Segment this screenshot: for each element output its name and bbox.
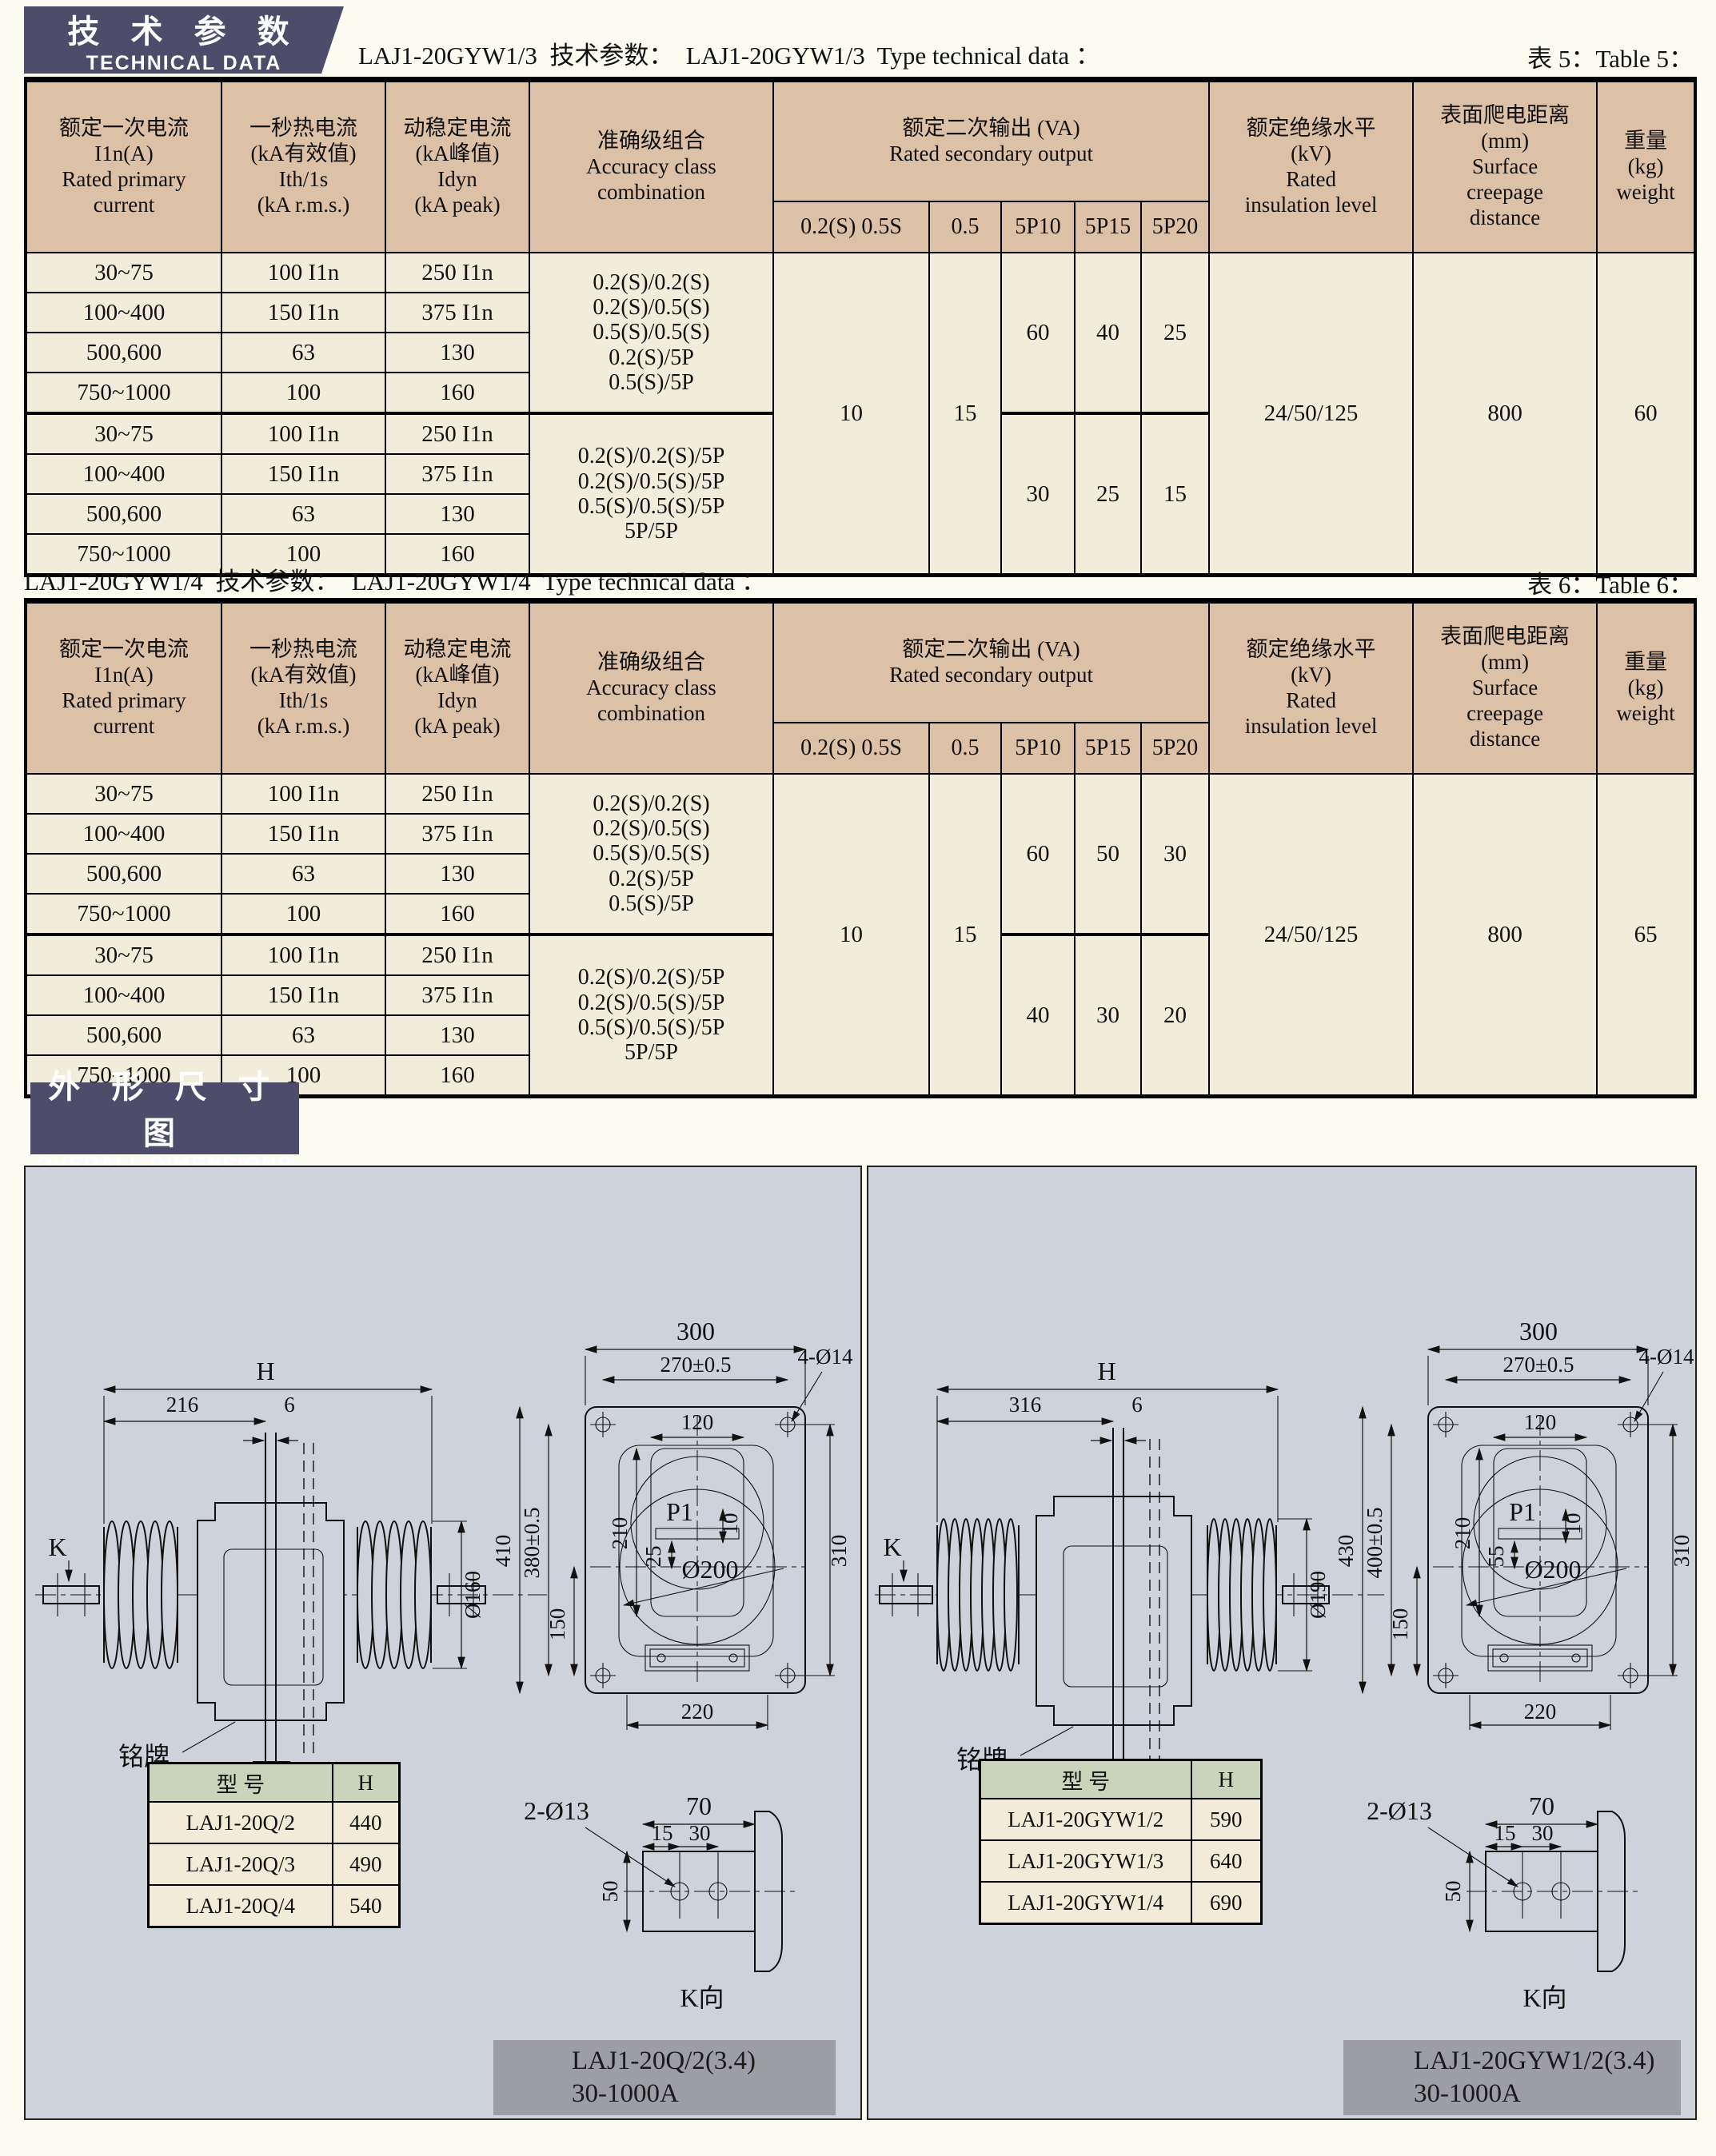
dim-H: H	[256, 1357, 274, 1385]
front-view-drawing: P1 10 25 Ø200 300 270±0.5 4-Ø14 120 210 …	[491, 1317, 853, 1730]
dim-10: 10	[718, 1513, 742, 1535]
hdr-5p10: 5P10	[1001, 201, 1075, 253]
table-row: LAJ1-20Q/2440	[149, 1802, 400, 1843]
badge-en-label: TECHNICAL DATA	[24, 52, 344, 75]
cell-thermal: 100 I1n	[221, 774, 385, 814]
dim-dia200: Ø200	[681, 1555, 738, 1584]
model-name: LAJ1-20GYW1/3	[980, 1840, 1191, 1882]
cell-dynamic: 375 I1n	[385, 975, 529, 1015]
hdr-primary-current: 额定一次电流 I1n(A) Rated primary current	[26, 601, 221, 775]
cell-creepage: 800	[1413, 253, 1597, 576]
hdr-insulation: 额定绝缘水平 (kV) Rated insulation level	[1209, 601, 1413, 775]
dim-410: 410	[491, 1535, 515, 1568]
hdr-insulation: 额定绝缘水平 (kV) Rated insulation level	[1209, 80, 1413, 253]
dim-6: 6	[284, 1393, 295, 1417]
left-bellows	[937, 1519, 1019, 1671]
hdr-05: 0.5	[929, 723, 1001, 774]
dim-70: 70	[1529, 1791, 1554, 1820]
dim-dia160: Ø160	[461, 1571, 485, 1619]
cell-primary: 500,600	[26, 333, 221, 373]
dim-dia190: Ø190	[1306, 1571, 1330, 1619]
dim-220: 220	[1524, 1700, 1557, 1724]
model-name: LAJ1-20Q/2	[149, 1802, 333, 1843]
cell-thermal: 100	[221, 894, 385, 935]
dim-400: 400±0.5	[1363, 1507, 1387, 1578]
cell-5p20-g2: 20	[1141, 935, 1209, 1097]
dim-210: 210	[1451, 1517, 1475, 1550]
label-P1: P1	[666, 1497, 693, 1526]
dim-dia200: Ø200	[1524, 1555, 1581, 1584]
right-drawing-svg: K 铭牌 H 316 6 Ø190 P1	[868, 1167, 1695, 2118]
hdr-dynamic-current: 动稳定电流 (kA峰值) Idyn (kA peak)	[385, 80, 529, 253]
hdr-weight: 重量 (kg) weight	[1597, 80, 1695, 253]
dim-2xdia13: 2-Ø13	[524, 1796, 589, 1825]
cell-5p15-g1: 50	[1075, 774, 1141, 935]
dimension-drawing-left-panel: K 铭牌 H 216 6 Ø160 P1	[24, 1166, 862, 2120]
cell-thermal: 63	[221, 1015, 385, 1055]
model-height-table-left: 型 号H LAJ1-20Q/2440 LAJ1-20Q/3490 LAJ1-20…	[147, 1762, 401, 1928]
cell-primary: 500,600	[26, 494, 221, 534]
k-view-title: K向	[680, 1983, 724, 2012]
model-name: LAJ1-20Q/4	[149, 1885, 333, 1927]
dim-300: 300	[676, 1317, 715, 1345]
dim-310: 310	[827, 1535, 851, 1568]
table5-ref: 表 5：Table 5：	[1527, 38, 1694, 74]
cell-5p10-g1: 60	[1001, 253, 1075, 413]
cell-primary: 100~400	[26, 454, 221, 494]
cell-creepage: 800	[1413, 774, 1597, 1097]
model-name: LAJ1-20GYW1/4	[980, 1882, 1191, 1924]
model-h: 440	[333, 1802, 400, 1843]
left-drawing-svg: K 铭牌 H 216 6 Ø160 P1	[26, 1167, 860, 2118]
header-row-1: 额定一次电流 I1n(A) Rated primary current 一秒热电…	[26, 80, 1695, 202]
cell-thermal: 150 I1n	[221, 454, 385, 494]
model-name: LAJ1-20GYW1/2	[980, 1799, 1191, 1840]
dim-316: 316	[1009, 1393, 1042, 1417]
cell-dynamic: 250 I1n	[385, 413, 529, 454]
cell-primary: 30~75	[26, 935, 221, 975]
dim-30: 30	[689, 1821, 711, 1845]
dim-2xdia13: 2-Ø13	[1367, 1796, 1432, 1825]
model-name: LAJ1-20Q/3	[149, 1843, 333, 1885]
cell-primary: 30~75	[26, 413, 221, 454]
tech-table-6: 额定一次电流 I1n(A) Rated primary current 一秒热电…	[24, 598, 1697, 1098]
dim-220: 220	[681, 1700, 714, 1724]
dim-270: 270±0.5	[1502, 1353, 1574, 1377]
cell-accuracy-g2: 0.2(S)/0.2(S)/5P 0.2(S)/0.5(S)/5P 0.5(S)…	[529, 935, 773, 1097]
dim-offset: 25	[641, 1546, 665, 1568]
cell-thermal: 63	[221, 854, 385, 894]
dim-310: 310	[1670, 1535, 1694, 1568]
cell-weight: 65	[1597, 774, 1695, 1097]
dim-4xdia14: 4-Ø14	[1639, 1345, 1694, 1369]
right-bellows	[357, 1521, 431, 1668]
badge-zh-label: 技 术 参 数	[24, 6, 344, 52]
table-row: LAJ1-20GYW1/3640	[980, 1840, 1262, 1882]
hdr-5p20: 5P20	[1141, 723, 1209, 774]
cell-va-05: 15	[929, 774, 1001, 1097]
hdr-secondary-output: 额定二次输出 (VA) Rated secondary output	[773, 601, 1209, 723]
dim-15: 15	[652, 1821, 673, 1845]
drawing-caption-right: LAJ1-20GYW1/2(3.4) 30-1000A	[1343, 2040, 1681, 2115]
cell-primary: 100~400	[26, 814, 221, 854]
hdr-creepage: 表面爬电距离 (mm) Surface creepage distance	[1413, 601, 1597, 775]
cell-dynamic: 130	[385, 494, 529, 534]
cell-dynamic: 130	[385, 333, 529, 373]
cell-thermal: 100 I1n	[221, 253, 385, 293]
dim-H: H	[1097, 1357, 1115, 1385]
cell-5p20-g2: 15	[1141, 413, 1209, 576]
model-h: 640	[1191, 1840, 1262, 1882]
hdr-02s: 0.2(S) 0.5S	[773, 201, 929, 253]
cell-thermal: 100	[221, 373, 385, 413]
cell-weight: 60	[1597, 253, 1695, 576]
cell-dynamic: 160	[385, 373, 529, 413]
cell-dynamic: 160	[385, 894, 529, 935]
left-bellows	[104, 1521, 178, 1668]
badge-zh-label: 外 形 尺 寸 图	[30, 1061, 299, 1154]
table-row: 型 号H	[980, 1760, 1262, 1799]
dim-50: 50	[1441, 1881, 1465, 1903]
dim-30: 30	[1532, 1821, 1554, 1845]
model-col-header: 型 号	[149, 1763, 333, 1803]
cell-primary: 750~1000	[26, 373, 221, 413]
hdr-thermal-current: 一秒热电流 (kA有效值) Ith/1s (kA r.m.s.)	[221, 601, 385, 775]
cell-thermal: 150 I1n	[221, 814, 385, 854]
cell-accuracy-g2: 0.2(S)/0.2(S)/5P 0.2(S)/0.5(S)/5P 0.5(S)…	[529, 413, 773, 576]
drawing-caption-left: LAJ1-20Q/2(3.4) 30-1000A	[493, 2040, 836, 2115]
dim-380: 380±0.5	[520, 1507, 544, 1578]
table5-title: LAJ1-20GYW1/3 技术参数： LAJ1-20GYW1/3 Type t…	[358, 35, 1100, 71]
hdr-weight: 重量 (kg) weight	[1597, 601, 1695, 775]
table-row: 30~75 100 I1n 250 I1n 0.2(S)/0.2(S) 0.2(…	[26, 253, 1695, 293]
cell-va-05: 15	[929, 253, 1001, 576]
hdr-accuracy: 准确级组合 Accuracy class combination	[529, 80, 773, 253]
cell-thermal: 63	[221, 333, 385, 373]
technical-data-badge: 技 术 参 数 TECHNICAL DATA	[24, 6, 344, 74]
cell-5p20-g1: 30	[1141, 774, 1209, 935]
cell-dynamic: 375 I1n	[385, 814, 529, 854]
k-view-arrow-label: K	[883, 1532, 901, 1561]
cell-5p15-g2: 30	[1075, 935, 1141, 1097]
hdr-02s: 0.2(S) 0.5S	[773, 723, 929, 774]
model-h: 690	[1191, 1882, 1262, 1924]
h-col-header: H	[1191, 1760, 1262, 1799]
table-row: 型 号H	[149, 1763, 400, 1803]
cell-dynamic: 250 I1n	[385, 253, 529, 293]
overall-dimensions-badge: 外 形 尺 寸 图 OVERALL DIMENSIONS	[30, 1082, 299, 1154]
cell-va-02s: 10	[773, 253, 929, 576]
model-height-table-right: 型 号H LAJ1-20GYW1/2590 LAJ1-20GYW1/3640 L…	[979, 1759, 1263, 1925]
cell-5p15-g1: 40	[1075, 253, 1141, 413]
cell-insulation: 24/50/125	[1209, 774, 1413, 1097]
cell-thermal: 150 I1n	[221, 293, 385, 333]
cell-5p10-g2: 30	[1001, 413, 1075, 576]
hdr-dynamic-current: 动稳定电流 (kA峰值) Idyn (kA peak)	[385, 601, 529, 775]
k-view-arrow-label: K	[48, 1532, 66, 1561]
table-row: LAJ1-20Q/3490	[149, 1843, 400, 1885]
hdr-accuracy: 准确级组合 Accuracy class combination	[529, 601, 773, 775]
cell-accuracy-g1: 0.2(S)/0.2(S) 0.2(S)/0.5(S) 0.5(S)/0.5(S…	[529, 774, 773, 935]
front-view-drawing: P1 10 55 Ø200 300 270±0.5 4-Ø14 120 210 …	[1334, 1317, 1694, 1730]
cell-thermal: 150 I1n	[221, 975, 385, 1015]
table6-ref: 表 6：Table 6：	[1527, 564, 1694, 600]
tech-table-5: 额定一次电流 I1n(A) Rated primary current 一秒热电…	[24, 77, 1697, 577]
h-col-header: H	[333, 1763, 400, 1803]
dim-4xdia14: 4-Ø14	[798, 1345, 853, 1369]
cell-primary: 30~75	[26, 253, 221, 293]
header-row-1: 额定一次电流 I1n(A) Rated primary current 一秒热电…	[26, 601, 1695, 723]
cell-thermal: 63	[221, 494, 385, 534]
right-bellows	[1207, 1519, 1276, 1671]
cell-dynamic: 130	[385, 1015, 529, 1055]
table-row: LAJ1-20GYW1/2590	[980, 1799, 1262, 1840]
model-h: 540	[333, 1885, 400, 1927]
dim-120: 120	[1524, 1410, 1557, 1434]
model-h: 490	[333, 1843, 400, 1885]
datasheet-page: { "badges": { "tech_zh": "技 术 参 数", "tec…	[0, 0, 1716, 2156]
dim-10: 10	[1561, 1513, 1585, 1535]
table-row: LAJ1-20Q/4540	[149, 1885, 400, 1927]
dim-70: 70	[686, 1791, 712, 1820]
dim-15: 15	[1495, 1821, 1516, 1845]
dim-50: 50	[598, 1881, 622, 1903]
dim-120: 120	[681, 1410, 714, 1434]
k-view-title: K向	[1522, 1983, 1566, 2012]
cell-dynamic: 250 I1n	[385, 935, 529, 975]
cell-dynamic: 250 I1n	[385, 774, 529, 814]
dim-6: 6	[1131, 1393, 1143, 1417]
hdr-primary-current: 额定一次电流 I1n(A) Rated primary current	[26, 80, 221, 253]
model-col-header: 型 号	[980, 1760, 1191, 1799]
dimension-drawing-right-panel: K 铭牌 H 316 6 Ø190 P1	[867, 1166, 1697, 2120]
k-view-drawing: 70 15 30 50 2-Ø13 K向	[1367, 1791, 1638, 2012]
hdr-5p15: 5P15	[1075, 201, 1141, 253]
hdr-secondary-output: 额定二次输出 (VA) Rated secondary output	[773, 80, 1209, 202]
cell-5p15-g2: 25	[1075, 413, 1141, 576]
cell-thermal: 100 I1n	[221, 935, 385, 975]
transformer-body	[198, 1503, 344, 1720]
cell-dynamic: 130	[385, 854, 529, 894]
cell-primary: 100~400	[26, 975, 221, 1015]
dim-216: 216	[166, 1393, 199, 1417]
cell-primary: 500,600	[26, 1015, 221, 1055]
dim-300: 300	[1519, 1317, 1558, 1345]
cell-primary: 750~1000	[26, 894, 221, 935]
hdr-05: 0.5	[929, 201, 1001, 253]
dim-430: 430	[1334, 1535, 1358, 1568]
cell-primary: 100~400	[26, 293, 221, 333]
dim-270: 270±0.5	[660, 1353, 731, 1377]
side-view-drawing: K 铭牌 H 316 6 Ø190	[875, 1357, 1384, 1791]
label-P1: P1	[1509, 1497, 1536, 1526]
hdr-thermal-current: 一秒热电流 (kA有效值) Ith/1s (kA r.m.s.)	[221, 80, 385, 253]
hdr-5p10: 5P10	[1001, 723, 1075, 774]
k-view-drawing: 70 15 30 50 2-Ø13 K向	[524, 1791, 795, 2012]
cell-thermal: 100 I1n	[221, 413, 385, 454]
cell-5p10-g1: 60	[1001, 774, 1075, 935]
hdr-5p20: 5P20	[1141, 201, 1209, 253]
hdr-5p15: 5P15	[1075, 723, 1141, 774]
table-row: LAJ1-20GYW1/4690	[980, 1882, 1262, 1924]
cell-dynamic: 375 I1n	[385, 454, 529, 494]
table6-title: LAJ1-20GYW1/4 技术参数： LAJ1-20GYW1/4 Type t…	[24, 561, 766, 597]
table-row: 30~75 100 I1n 250 I1n 0.2(S)/0.2(S) 0.2(…	[26, 774, 1695, 814]
cell-primary: 500,600	[26, 854, 221, 894]
cell-5p10-g2: 40	[1001, 935, 1075, 1097]
cell-insulation: 24/50/125	[1209, 253, 1413, 576]
cell-accuracy-g1: 0.2(S)/0.2(S) 0.2(S)/0.5(S) 0.5(S)/0.5(S…	[529, 253, 773, 413]
model-h: 590	[1191, 1799, 1262, 1840]
cell-va-02s: 10	[773, 774, 929, 1097]
cell-5p20-g1: 25	[1141, 253, 1209, 413]
cell-dynamic: 160	[385, 1055, 529, 1097]
cell-primary: 30~75	[26, 774, 221, 814]
dim-210: 210	[608, 1517, 632, 1550]
side-view-drawing: K 铭牌 H 216 6 Ø160	[35, 1357, 547, 1787]
hdr-creepage: 表面爬电距离 (mm) Surface creepage distance	[1413, 80, 1597, 253]
dim-offset: 55	[1484, 1546, 1508, 1568]
cell-dynamic: 375 I1n	[385, 293, 529, 333]
